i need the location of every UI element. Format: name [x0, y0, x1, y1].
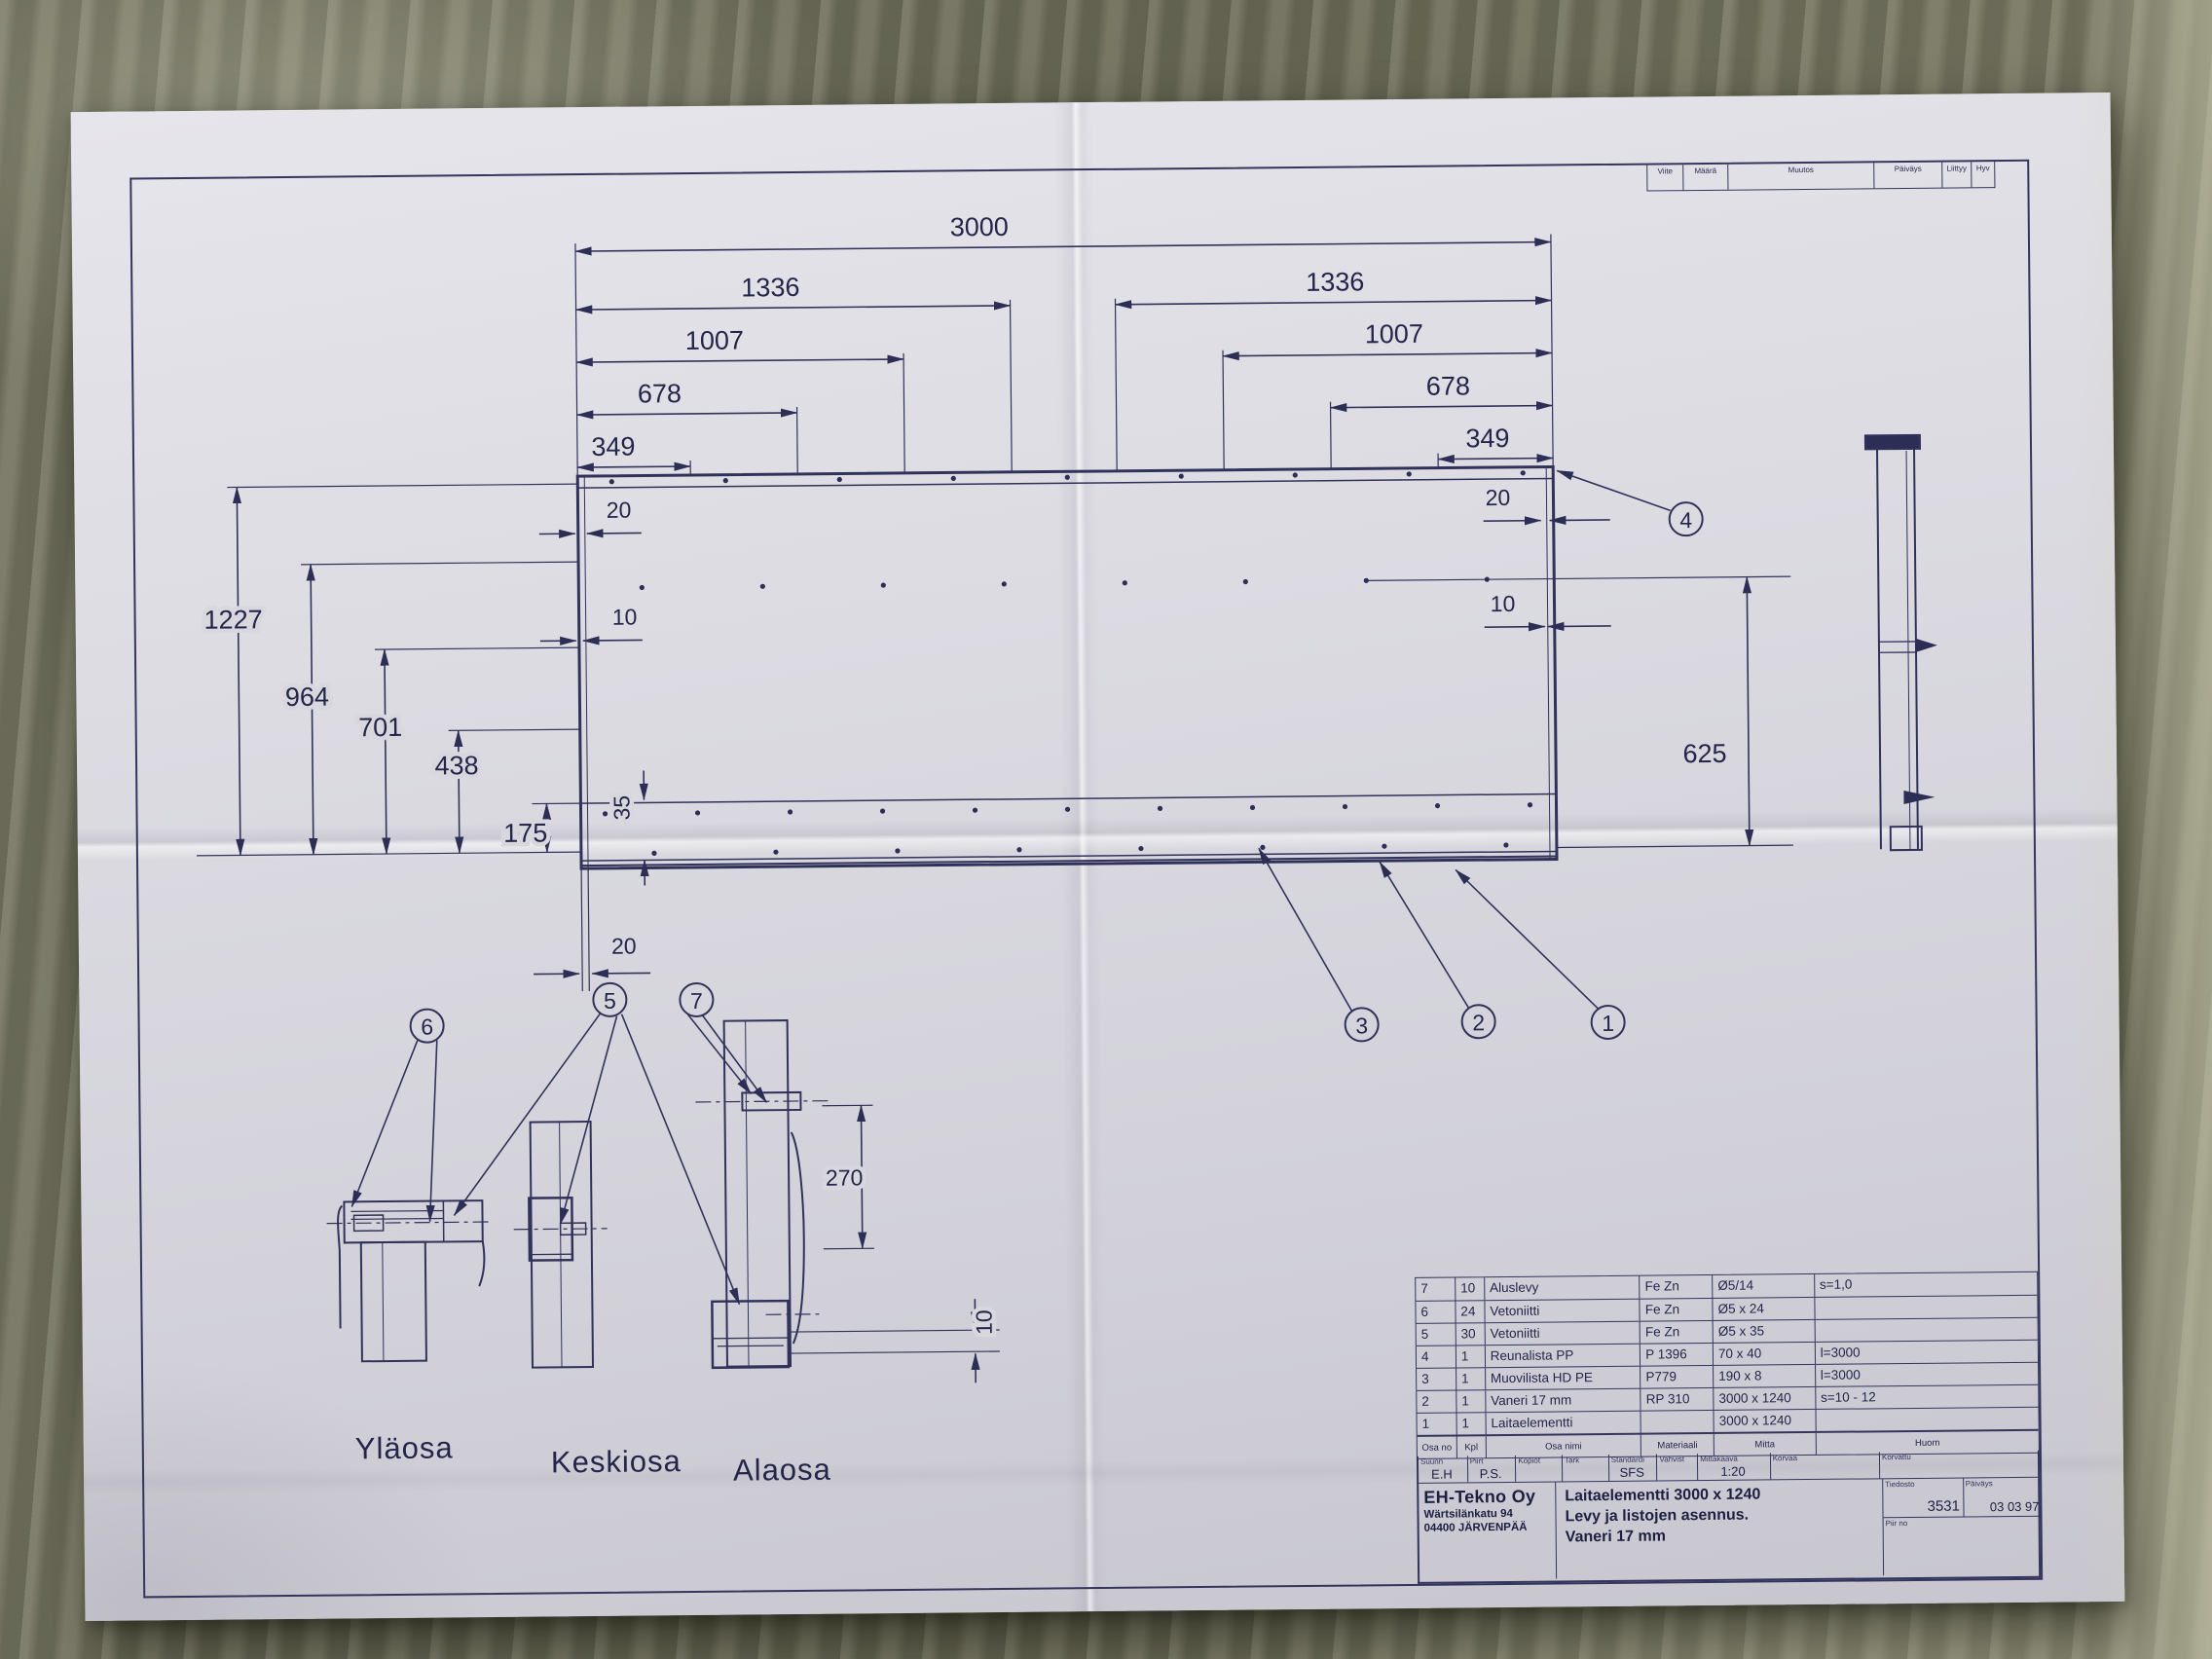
keskiosa-detail	[513, 1122, 608, 1368]
part-name: Laitaelementti	[1485, 1412, 1641, 1435]
dim-35: 35	[608, 795, 634, 821]
revision-col-muutos: Muutos	[1727, 163, 1873, 189]
part-qty: 1	[1456, 1346, 1485, 1367]
callout-2-number: 2	[1472, 1010, 1485, 1035]
part-material: RP 310	[1641, 1388, 1714, 1411]
part-qty: 1	[1456, 1368, 1485, 1389]
part-no: 1	[1418, 1413, 1456, 1434]
part-material: P 1396	[1640, 1344, 1713, 1366]
panel-left-inner-line	[584, 476, 588, 868]
label-keskiosa: Keskiosa	[551, 1444, 682, 1479]
title-block: Suunn E.H Piirt P.S. Kopiot Tark Standar…	[1417, 1451, 2041, 1584]
part-note	[1814, 1318, 2037, 1342]
part-no: 3	[1417, 1368, 1456, 1389]
panel-right-inner-line	[1546, 467, 1550, 860]
title-block-main: EH-Tekno Oy Wärtsilänkatu 94 04400 JÄRVE…	[1419, 1478, 2039, 1580]
dim-3000: 3000	[950, 212, 1009, 242]
field-standardi: Standardi SFS	[1608, 1455, 1657, 1481]
part-no: 7	[1416, 1278, 1455, 1301]
part-qty: 24	[1455, 1301, 1484, 1322]
dim-20-bottom: 20	[611, 934, 637, 959]
profile-top-cap	[1865, 435, 1920, 450]
field-piir-no: Piir no	[1884, 1517, 2044, 1574]
dim-270: 270	[826, 1164, 864, 1190]
ylaosa-detail	[326, 1200, 494, 1362]
dim-625: 625	[1682, 739, 1726, 768]
part-note: l=3000	[1815, 1363, 2038, 1386]
part-no: 2	[1417, 1390, 1456, 1412]
dim-678-left: 678	[638, 379, 682, 408]
field-korvattu: Korvattu	[1879, 1451, 2038, 1479]
revision-col-hyv: Hyv	[1971, 162, 1994, 187]
revision-table: Viite Määrä Muutos Päiväys Liittyy Hyv	[1646, 162, 1995, 191]
photo-background: 3000 1336 1336 1007 1007 678 678 349 349…	[0, 0, 2212, 1659]
part-name: Vetoniitti	[1484, 1322, 1640, 1346]
dim-1336-right: 1336	[1306, 267, 1364, 297]
part-name: Vaneri 17 mm	[1485, 1389, 1641, 1413]
dim-701: 701	[358, 713, 402, 742]
field-suunn: Suunn E.H	[1419, 1456, 1467, 1482]
side-profile-view	[1865, 435, 1939, 851]
part-name: Muovilista HD PE	[1485, 1367, 1641, 1390]
drawing-frame: 3000 1336 1336 1007 1007 678 678 349 349…	[129, 160, 2043, 1599]
part-no: 5	[1417, 1323, 1456, 1345]
part-name: Vetoniitti	[1484, 1300, 1640, 1323]
part-name: Aluslevy	[1484, 1276, 1640, 1301]
part-material: Fe Zn	[1640, 1321, 1713, 1344]
dim-349-left: 349	[591, 432, 635, 461]
part-size: 70 x 40	[1713, 1343, 1815, 1365]
part-size: Ø5 x 24	[1712, 1298, 1814, 1320]
dim-10-right: 10	[1491, 591, 1516, 616]
dim-349-right: 349	[1465, 424, 1509, 453]
callout-1-number: 1	[1602, 1011, 1614, 1036]
dim-1007-left: 1007	[685, 325, 744, 355]
part-note: s=10 - 12	[1815, 1385, 2038, 1409]
part-size: Ø5 x 35	[1713, 1320, 1815, 1343]
part-qty: 30	[1456, 1323, 1485, 1345]
label-ylaosa: Yläosa	[355, 1430, 454, 1465]
header-kpl: Kpl	[1456, 1436, 1486, 1457]
title-line-2: Levy ja listojen asennus.	[1565, 1503, 1876, 1527]
part-no: 6	[1416, 1302, 1455, 1323]
dim-1336-left: 1336	[741, 273, 799, 303]
part-size: 3000 x 1240	[1714, 1410, 1816, 1432]
alaosa-detail	[695, 1020, 834, 1368]
revision-col-viite: Viite	[1647, 165, 1682, 190]
bottom-strip-top-line	[580, 793, 1556, 803]
part-qty: 10	[1455, 1277, 1484, 1300]
part-size: Ø5/14	[1712, 1274, 1814, 1298]
callout-7-number: 7	[690, 988, 703, 1014]
dim-10-alaosa: 10	[971, 1309, 996, 1335]
part-note	[1815, 1408, 2038, 1431]
title-line-3: Vaneri 17 mm	[1566, 1524, 1877, 1547]
dim-438: 438	[434, 751, 478, 780]
part-name: Reunalista PP	[1485, 1345, 1641, 1368]
part-qty: 1	[1456, 1390, 1485, 1412]
dim-20-top-left: 20	[607, 498, 632, 523]
field-vahvist: Vahvist	[1656, 1454, 1697, 1480]
field-tark: Tark	[1562, 1455, 1608, 1481]
label-alaosa: Alaosa	[733, 1453, 831, 1488]
part-size: 190 x 8	[1713, 1365, 1815, 1387]
revision-col-liittyy: Liittyy	[1941, 162, 1971, 187]
part-qty: 1	[1456, 1413, 1485, 1434]
part-material: P779	[1640, 1366, 1713, 1388]
part-note: l=3000	[1815, 1341, 2038, 1364]
callout-6-number: 6	[421, 1014, 433, 1040]
field-mittakaava: Mittakaava 1:20	[1697, 1453, 1770, 1480]
parts-table: 7 10 Aluslevy Fe Zn Ø5/14 s=1,0 6 24 Vet…	[1415, 1272, 2040, 1459]
part-material: Fe Zn	[1640, 1299, 1713, 1321]
field-kopiot: Kopiot	[1515, 1455, 1562, 1481]
field-tiedosto: Tiedosto 3531	[1883, 1479, 1963, 1518]
part-note	[1814, 1296, 2037, 1319]
part-no: 4	[1417, 1346, 1456, 1367]
dim-964: 964	[285, 682, 329, 712]
drawing-sheet: 3000 1336 1336 1007 1007 678 678 349 349…	[71, 92, 2125, 1621]
callout-3-number: 3	[1355, 1013, 1368, 1038]
dim-20-top-right: 20	[1486, 485, 1511, 510]
company-city: 04400 JÄRVENPÄÄ	[1424, 1521, 1556, 1535]
field-paivays: Päiväys 03 03 97	[1963, 1478, 2043, 1517]
part-size: 3000 x 1240	[1713, 1387, 1815, 1410]
panel-and-details	[319, 435, 1944, 1372]
revision-col-paivays: Päiväys	[1873, 163, 1941, 189]
part-material	[1641, 1411, 1714, 1433]
part-note: s=1,0	[1814, 1272, 2037, 1297]
revision-col-maara: Määrä	[1682, 165, 1727, 190]
field-piirt: Piirt P.S.	[1467, 1456, 1516, 1482]
field-korvaa: Korvaa	[1770, 1452, 1880, 1479]
file-date-box: Tiedosto 3531 Päiväys 03 03 97 Piir no	[1882, 1478, 2043, 1576]
dim-1227: 1227	[203, 605, 262, 635]
dim-1007-right: 1007	[1365, 319, 1423, 350]
company-block: EH-Tekno Oy Wärtsilänkatu 94 04400 JÄRVE…	[1419, 1483, 1557, 1580]
part-material: Fe Zn	[1639, 1275, 1712, 1299]
drawing-title: Laitaelementti 3000 x 1240 Levy ja listo…	[1565, 1483, 1877, 1547]
company-name: EH-Tekno Oy	[1423, 1487, 1555, 1508]
header-osa-no: Osa no	[1418, 1436, 1456, 1457]
profile-lower-connector	[1903, 791, 1935, 804]
dim-175: 175	[503, 818, 547, 847]
callout-4-number: 4	[1679, 507, 1692, 533]
company-street: Wärtsilänkatu 94	[1423, 1507, 1555, 1522]
dim-10-left: 10	[612, 605, 638, 630]
callout-5-number: 5	[604, 988, 616, 1014]
profile-mid-connector	[1916, 639, 1937, 652]
dim-678-right: 678	[1426, 371, 1470, 400]
